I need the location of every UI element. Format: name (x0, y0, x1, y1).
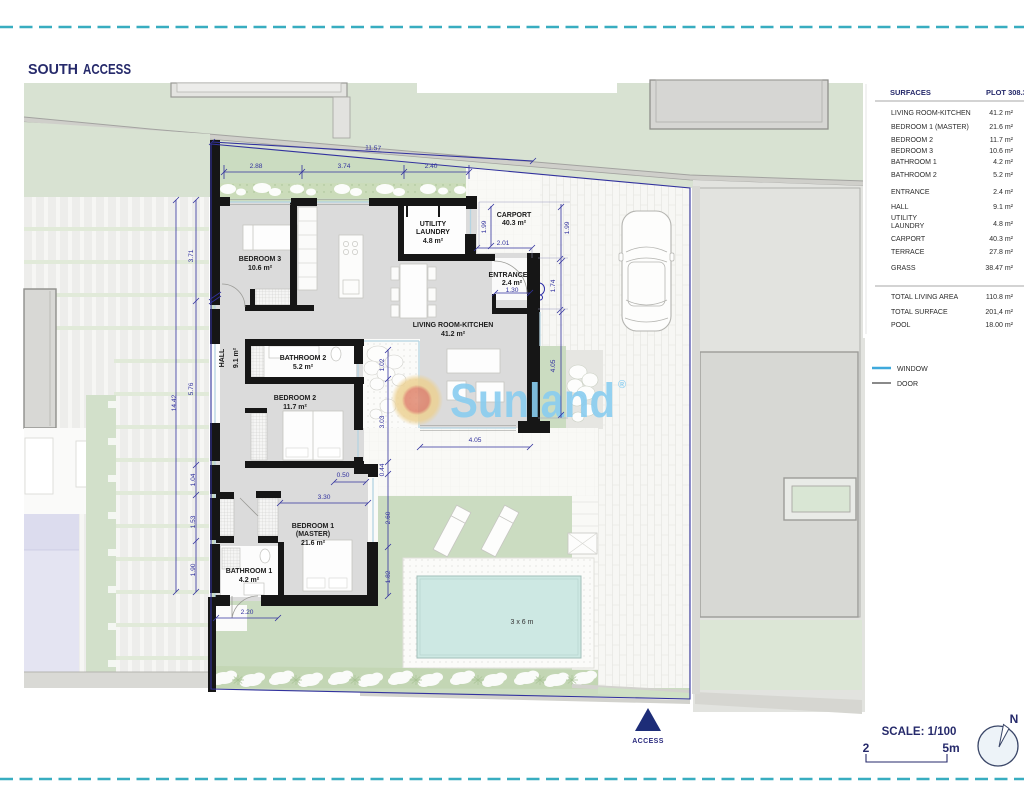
svg-text:1.82: 1.82 (385, 570, 392, 583)
svg-text:2.60: 2.60 (385, 511, 392, 524)
svg-text:3.30: 3.30 (318, 494, 331, 501)
svg-text:N: N (1010, 712, 1019, 726)
svg-text:POOL: POOL (891, 322, 911, 329)
svg-text:UTILITY: UTILITY (420, 221, 447, 228)
svg-text:18.00 m²: 18.00 m² (985, 322, 1013, 329)
svg-text:11.7 m²: 11.7 m² (283, 404, 307, 411)
svg-text:110.8 m²: 110.8 m² (986, 294, 1014, 301)
svg-text:9.1 m²: 9.1 m² (993, 204, 1014, 211)
svg-text:10.6 m²: 10.6 m² (248, 265, 273, 272)
svg-text:38.47 m²: 38.47 m² (985, 265, 1013, 272)
svg-text:1.74: 1.74 (550, 279, 557, 292)
svg-text:TOTAL LIVING AREA: TOTAL LIVING AREA (891, 294, 959, 301)
svg-text:10.6 m²: 10.6 m² (989, 148, 1013, 155)
svg-text:2.20: 2.20 (241, 609, 254, 616)
svg-text:2.40: 2.40 (425, 163, 438, 170)
svg-text:1.02: 1.02 (379, 358, 386, 371)
svg-text:ACCESS: ACCESS (632, 738, 664, 745)
svg-text:4.8 m²: 4.8 m² (423, 238, 444, 245)
svg-text:21.6 m²: 21.6 m² (301, 540, 326, 547)
svg-text:BEDROOM 1: BEDROOM 1 (292, 523, 335, 530)
svg-text:ACCESS: ACCESS (83, 61, 131, 78)
svg-text:HALL: HALL (219, 348, 226, 367)
svg-text:SURFACES: SURFACES (890, 88, 931, 97)
svg-text:4.2 m²: 4.2 m² (239, 577, 260, 584)
svg-text:14.42: 14.42 (171, 394, 178, 411)
svg-text:41.2 m²: 41.2 m² (441, 331, 466, 338)
svg-text:9.1 m²: 9.1 m² (233, 347, 240, 368)
svg-text:5.76: 5.76 (188, 382, 195, 395)
svg-text:4.2 m²: 4.2 m² (993, 159, 1014, 166)
svg-text:PLOT 308.3: PLOT 308.3 (986, 88, 1024, 97)
svg-text:21.6 m²: 21.6 m² (989, 124, 1013, 131)
svg-text:CARPORT: CARPORT (891, 236, 926, 243)
svg-text:UTILITY: UTILITY (891, 215, 917, 222)
svg-text:BEDROOM 2: BEDROOM 2 (274, 395, 317, 402)
svg-text:ENTRANCE: ENTRANCE (891, 189, 930, 196)
svg-text:2: 2 (863, 741, 870, 755)
svg-text:3.03: 3.03 (379, 415, 386, 428)
svg-text:1.90: 1.90 (190, 563, 197, 576)
svg-text:1.53: 1.53 (190, 515, 197, 528)
svg-text:BEDROOM 3: BEDROOM 3 (239, 256, 282, 263)
svg-text:2.4 m²: 2.4 m² (502, 280, 523, 287)
svg-text:SCALE: 1/100: SCALE: 1/100 (882, 726, 957, 738)
svg-text:1.99: 1.99 (564, 221, 571, 234)
svg-text:11.57: 11.57 (365, 145, 382, 153)
svg-text:TERRACE: TERRACE (891, 249, 925, 256)
svg-text:CARPORT: CARPORT (497, 212, 532, 219)
svg-text:0.44: 0.44 (379, 463, 386, 476)
svg-text:3 x 6 m: 3 x 6 m (511, 619, 534, 626)
svg-text:LIVING ROOM-KITCHEN: LIVING ROOM-KITCHEN (891, 110, 971, 117)
svg-text:5m: 5m (942, 741, 959, 755)
svg-text:HALL: HALL (891, 204, 909, 211)
svg-text:201,4 m²: 201,4 m² (985, 309, 1013, 316)
svg-text:2.4 m²: 2.4 m² (993, 189, 1014, 196)
svg-text:GRASS: GRASS (891, 265, 916, 272)
svg-text:4.05: 4.05 (550, 359, 557, 372)
svg-text:BATHROOM 1: BATHROOM 1 (226, 568, 273, 575)
svg-text:SOUTH: SOUTH (28, 61, 78, 78)
svg-text:0.50: 0.50 (337, 472, 350, 479)
svg-text:(MASTER): (MASTER) (296, 531, 330, 538)
svg-text:4.8 m²: 4.8 m² (993, 221, 1014, 228)
svg-text:LAUNDRY: LAUNDRY (891, 223, 925, 230)
svg-text:BATHROOM 2: BATHROOM 2 (280, 355, 327, 362)
svg-text:BEDROOM 3: BEDROOM 3 (891, 148, 933, 155)
svg-text:LAUNDRY: LAUNDRY (416, 229, 450, 236)
svg-text:1.99: 1.99 (481, 220, 488, 233)
svg-text:WINDOW: WINDOW (897, 366, 928, 373)
svg-text:27.8 m²: 27.8 m² (989, 249, 1013, 256)
svg-text:DOOR: DOOR (897, 381, 918, 388)
svg-text:3.71: 3.71 (188, 249, 195, 262)
svg-text:ENTRANCE: ENTRANCE (489, 272, 528, 279)
svg-text:41.2 m²: 41.2 m² (989, 110, 1013, 117)
svg-text:®: ® (618, 379, 626, 391)
svg-text:TOTAL SURFACE: TOTAL SURFACE (891, 309, 948, 316)
svg-text:BATHROOM 1: BATHROOM 1 (891, 159, 937, 166)
svg-text:LIVING ROOM-KITCHEN: LIVING ROOM-KITCHEN (413, 322, 494, 329)
svg-text:5.2 m²: 5.2 m² (293, 364, 314, 371)
svg-text:11.7 m²: 11.7 m² (990, 137, 1014, 144)
svg-text:1.04: 1.04 (190, 473, 197, 486)
svg-text:2.88: 2.88 (250, 163, 263, 170)
svg-text:3.74: 3.74 (338, 163, 351, 170)
svg-text:5.2 m²: 5.2 m² (993, 172, 1014, 179)
svg-text:4.05: 4.05 (469, 437, 482, 444)
svg-text:BEDROOM 1 (MASTER): BEDROOM 1 (MASTER) (891, 124, 969, 131)
svg-text:40.3 m²: 40.3 m² (502, 220, 527, 227)
svg-text:BEDROOM 2: BEDROOM 2 (891, 137, 933, 144)
svg-text:2.01: 2.01 (497, 240, 510, 247)
svg-text:40.3 m²: 40.3 m² (989, 236, 1013, 243)
svg-text:BATHROOM 2: BATHROOM 2 (891, 172, 937, 179)
svg-text:1.30: 1.30 (506, 287, 519, 294)
svg-text:Sunland: Sunland (450, 375, 615, 428)
